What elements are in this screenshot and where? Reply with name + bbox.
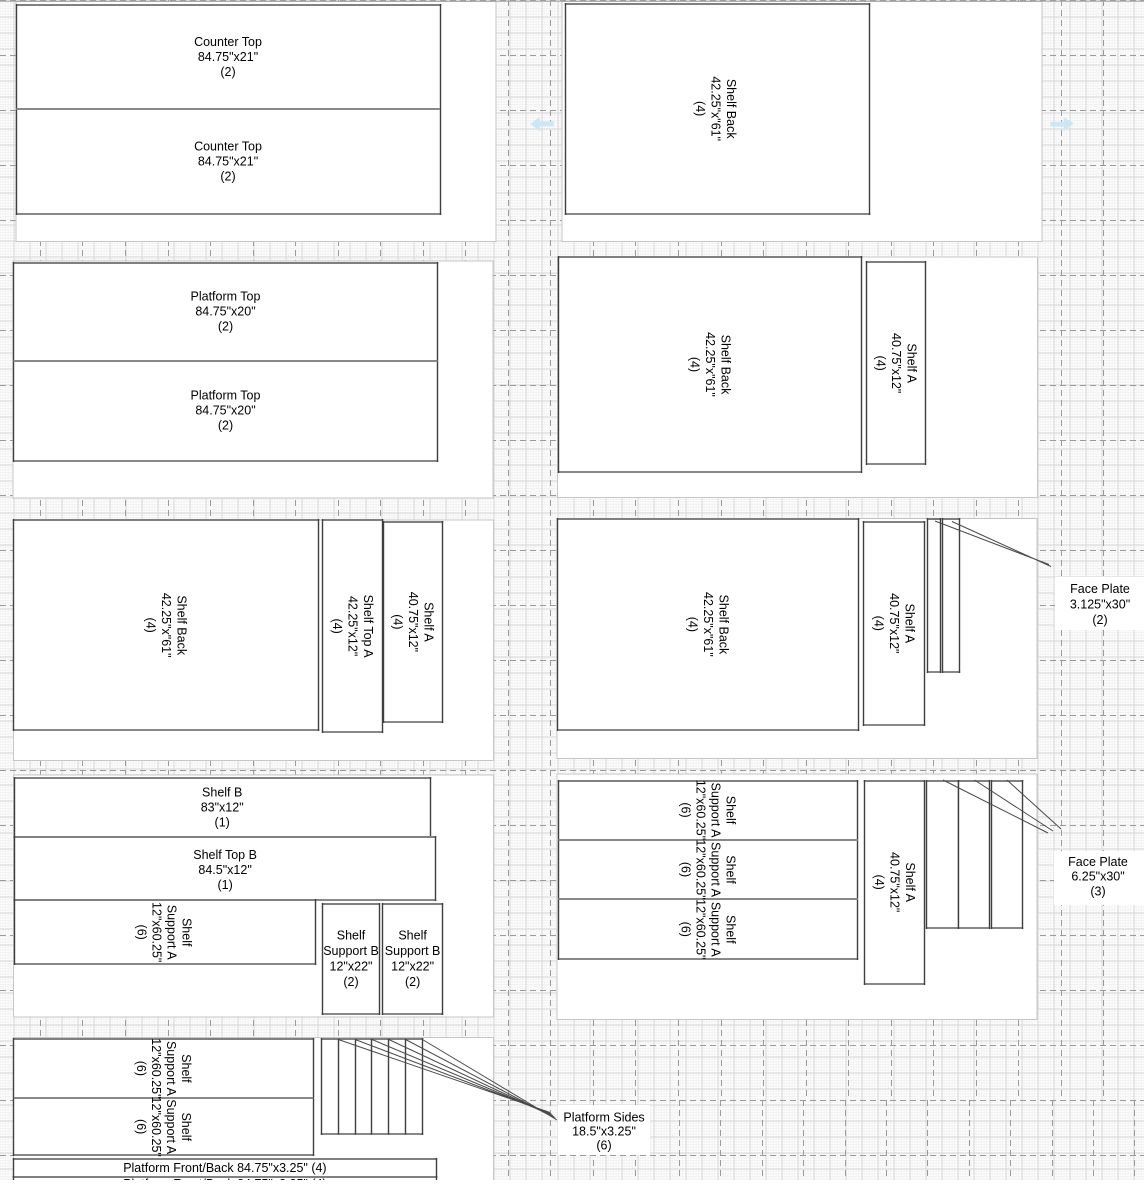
svg-text:Shelf Back: Shelf Back (724, 79, 738, 140)
svg-text:Shelf A: Shelf A (903, 603, 917, 643)
svg-text:Face Plate: Face Plate (1070, 582, 1130, 596)
svg-text:(4): (4) (391, 614, 405, 629)
svg-text:Shelf: Shelf (724, 796, 738, 825)
svg-text:(6): (6) (135, 925, 149, 940)
svg-text:(6): (6) (679, 802, 693, 817)
svg-text:Shelf: Shelf (398, 929, 427, 943)
svg-text:42.25"x"61": 42.25"x"61" (701, 592, 715, 657)
svg-text:(4): (4) (693, 101, 707, 116)
svg-text:40.75"x12": 40.75"x12" (887, 852, 901, 912)
svg-text:Support B: Support B (385, 944, 441, 958)
svg-text:(4): (4) (873, 356, 887, 371)
svg-text:Support A: Support A (164, 1041, 178, 1097)
svg-text:18.5"x3.25": 18.5"x3.25" (572, 1125, 636, 1139)
svg-text:(6): (6) (596, 1139, 611, 1153)
svg-text:83"x12": 83"x12" (201, 801, 244, 815)
svg-text:40.75"x12": 40.75"x12" (889, 333, 903, 393)
svg-text:3.125"x30": 3.125"x30" (1070, 597, 1130, 611)
svg-text:Shelf Back: Shelf Back (718, 335, 732, 396)
svg-text:84.5"x12": 84.5"x12" (198, 863, 251, 877)
svg-text:84.75"x20": 84.75"x20" (195, 305, 255, 319)
svg-text:Shelf: Shelf (337, 929, 366, 943)
svg-text:Shelf: Shelf (179, 1054, 193, 1083)
svg-text:Platform Top: Platform Top (191, 389, 261, 403)
svg-text:(4): (4) (687, 357, 701, 372)
svg-text:Shelf Back: Shelf Back (717, 595, 731, 656)
svg-text:6.25"x30": 6.25"x30" (1071, 869, 1124, 883)
svg-text:Shelf: Shelf (724, 855, 738, 884)
svg-text:(2): (2) (218, 320, 233, 334)
svg-text:12"x60.25": 12"x60.25" (694, 899, 708, 959)
svg-text:42.25"x"61": 42.25"x"61" (703, 332, 717, 397)
svg-text:(2): (2) (1092, 613, 1107, 627)
svg-text:12"x22": 12"x22" (391, 960, 434, 974)
svg-text:Shelf Top A: Shelf Top A (361, 595, 375, 659)
svg-text:12"x60.25": 12"x60.25" (694, 839, 708, 899)
svg-text:(2): (2) (220, 65, 235, 79)
svg-text:84.75"x21": 84.75"x21" (198, 155, 258, 169)
svg-text:40.75"x12": 40.75"x12" (887, 593, 901, 653)
svg-text:(2): (2) (343, 975, 358, 989)
svg-text:12"x22": 12"x22" (330, 960, 373, 974)
svg-text:Platform Top: Platform Top (191, 290, 261, 304)
svg-text:Shelf A: Shelf A (422, 602, 436, 642)
svg-text:Shelf Back: Shelf Back (175, 595, 189, 656)
svg-text:Support B: Support B (323, 944, 379, 958)
svg-text:42.25"x12": 42.25"x12" (345, 596, 359, 656)
svg-text:(4): (4) (872, 616, 886, 631)
svg-text:Face Plate: Face Plate (1068, 855, 1128, 869)
svg-text:(4): (4) (872, 875, 886, 890)
svg-text:(4): (4) (686, 617, 700, 632)
svg-text:(6): (6) (679, 922, 693, 937)
svg-text:Support A: Support A (709, 902, 723, 958)
svg-text:(4): (4) (144, 618, 158, 633)
svg-text:42.25"x"61": 42.25"x"61" (709, 76, 723, 141)
svg-text:(2): (2) (218, 419, 233, 433)
svg-text:Platform Sides: Platform Sides (563, 1110, 644, 1124)
svg-text:(6): (6) (679, 862, 693, 877)
svg-text:12"x60.25": 12"x60.25" (694, 780, 708, 840)
svg-text:Shelf: Shelf (180, 918, 194, 947)
svg-text:84.75"x21": 84.75"x21" (198, 50, 258, 64)
svg-text:40.75"x12": 40.75"x12" (406, 592, 420, 652)
svg-text:Shelf Top B: Shelf Top B (193, 848, 257, 862)
svg-text:Support A: Support A (709, 783, 723, 839)
svg-text:Counter Top: Counter Top (194, 35, 262, 49)
svg-text:Platform Front/Back 84.75"x3.2: Platform Front/Back 84.75"x3.25" (4) (123, 1161, 326, 1175)
svg-text:12"x60.25": 12"x60.25" (149, 1097, 163, 1157)
svg-text:(2): (2) (405, 975, 420, 989)
svg-text:(2): (2) (220, 170, 235, 184)
svg-text:Support A: Support A (165, 905, 179, 961)
svg-text:(1): (1) (217, 878, 232, 892)
svg-text:(6): (6) (134, 1119, 148, 1134)
svg-text:(1): (1) (215, 816, 230, 830)
svg-text:84.75"x20": 84.75"x20" (195, 404, 255, 418)
svg-text:Shelf: Shelf (724, 915, 738, 944)
svg-text:42.25"x"61": 42.25"x"61" (159, 593, 173, 658)
svg-text:Shelf B: Shelf B (202, 786, 242, 800)
svg-text:(4): (4) (330, 618, 344, 633)
svg-text:12"x60.25": 12"x60.25" (149, 1038, 163, 1098)
svg-text:Shelf A: Shelf A (903, 862, 917, 902)
svg-text:Support A: Support A (709, 842, 723, 898)
svg-text:Counter Top: Counter Top (194, 140, 262, 154)
svg-text:(6): (6) (134, 1061, 148, 1076)
svg-text:Shelf: Shelf (179, 1112, 193, 1141)
svg-text:Support A: Support A (164, 1099, 178, 1155)
svg-text:12"x60.25": 12"x60.25" (150, 902, 164, 962)
svg-text:(3): (3) (1090, 884, 1105, 898)
svg-text:Shelf A: Shelf A (904, 343, 918, 383)
